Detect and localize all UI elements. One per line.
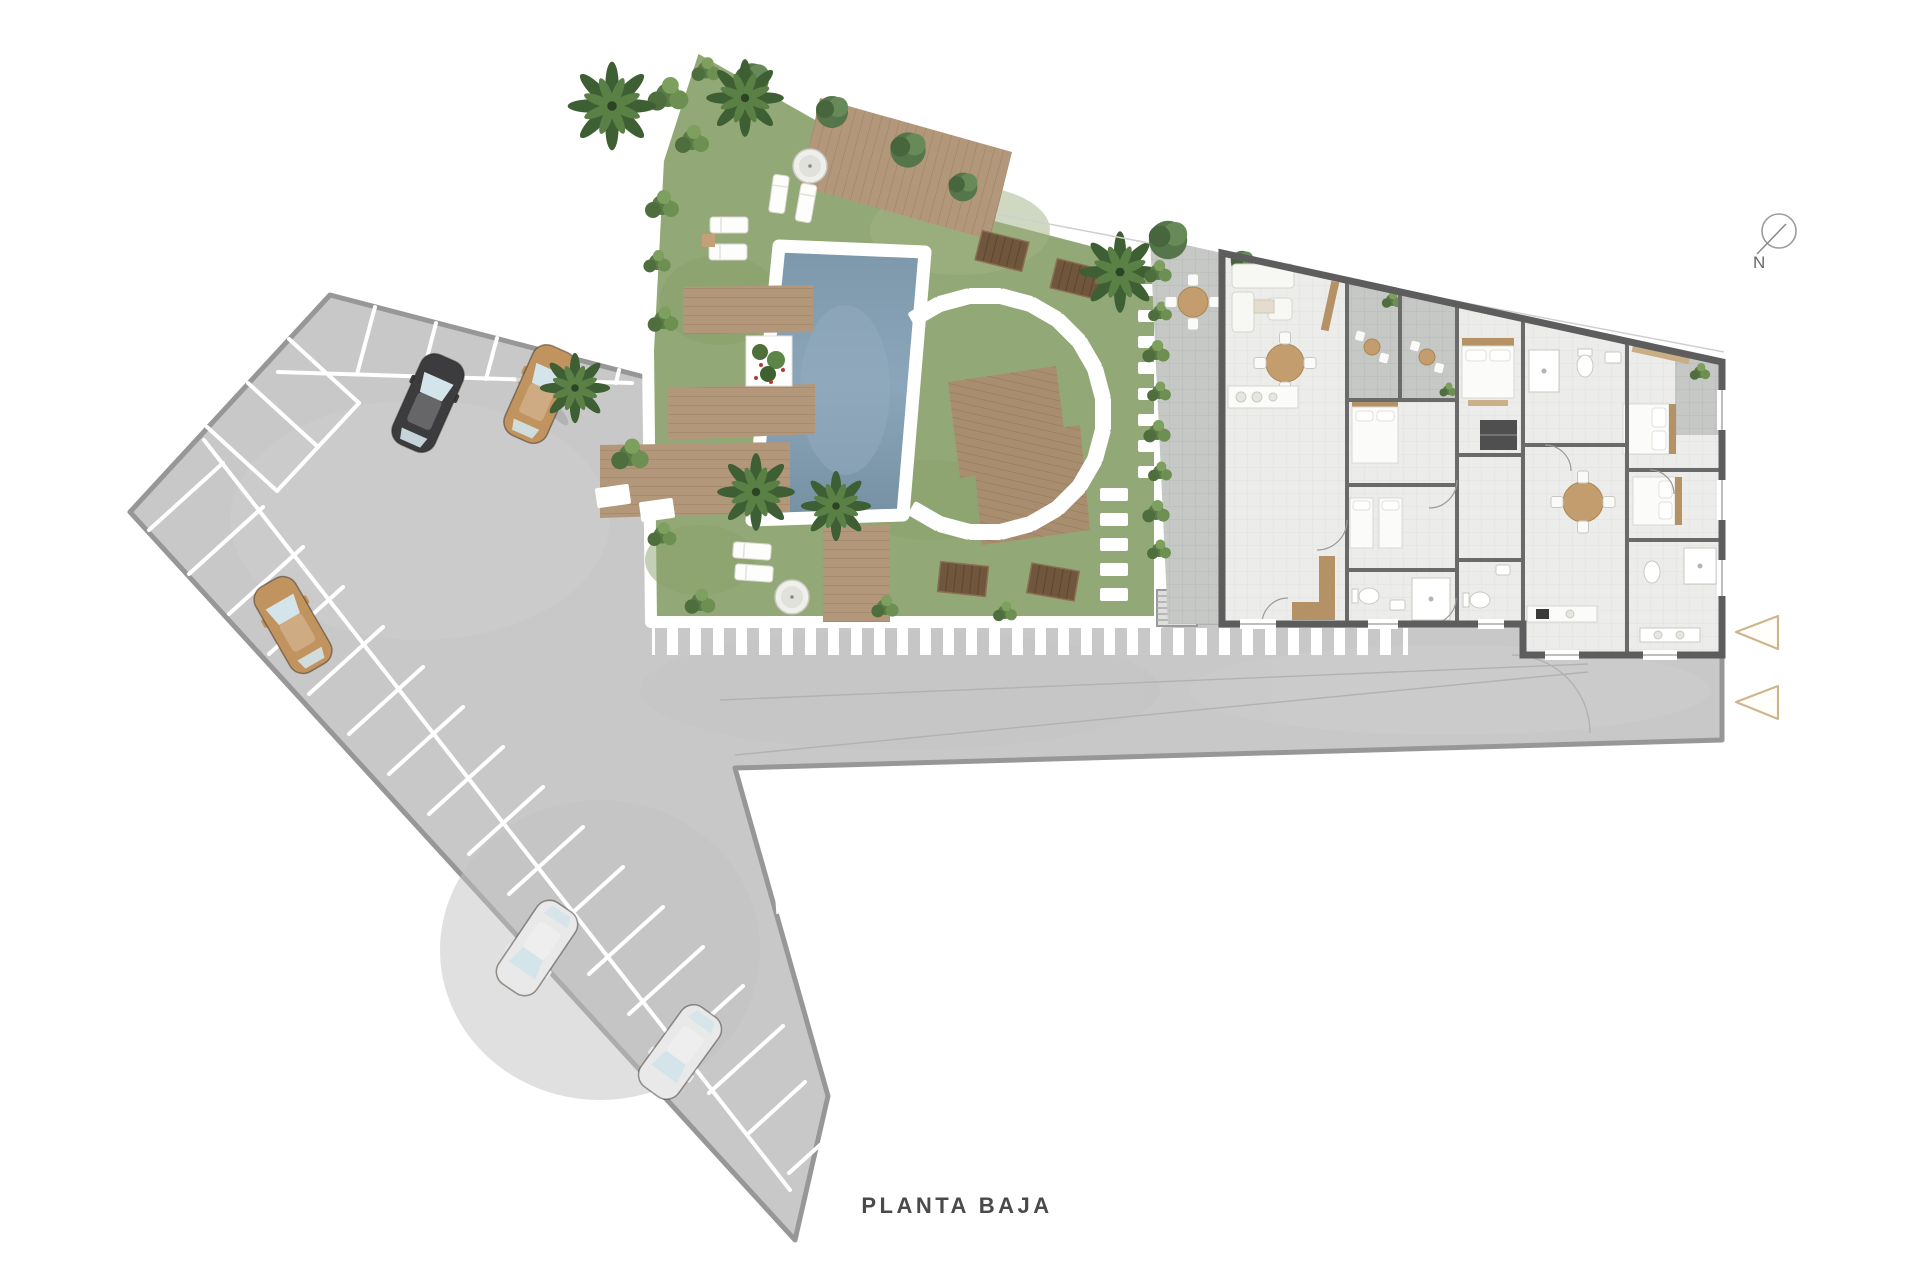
patio-table: [1178, 287, 1208, 317]
entrance-arrow-1: [1736, 616, 1778, 649]
palm-tree: [706, 59, 784, 137]
palm-tree: [568, 62, 657, 151]
compass: N: [1753, 214, 1796, 272]
palm-tree: [801, 471, 871, 541]
entrance-markers: [1736, 616, 1778, 719]
entrance-arrow-2: [1736, 686, 1778, 719]
dining-table: [1266, 344, 1304, 382]
crosswalk: [652, 628, 1408, 655]
dining-table: [1563, 482, 1603, 522]
palm-tree: [540, 353, 610, 423]
deck-left-upper: [683, 285, 813, 334]
compass-needle: [1757, 224, 1786, 254]
parasol-top: [793, 149, 827, 183]
north-label: N: [1753, 253, 1765, 272]
site-plan-drawing: N PLANTA BAJA: [0, 0, 1920, 1280]
deck-left-mid: [668, 384, 815, 440]
page-title: PLANTA BAJA: [861, 1193, 1052, 1218]
planter: [746, 336, 792, 386]
parasol-bottom: [775, 580, 809, 614]
palm-tree: [717, 453, 795, 531]
kitchen-L: [1319, 556, 1335, 604]
reserved-stall-outline: [770, 782, 855, 912]
site-plan-page: N PLANTA BAJA: [0, 0, 1920, 1280]
